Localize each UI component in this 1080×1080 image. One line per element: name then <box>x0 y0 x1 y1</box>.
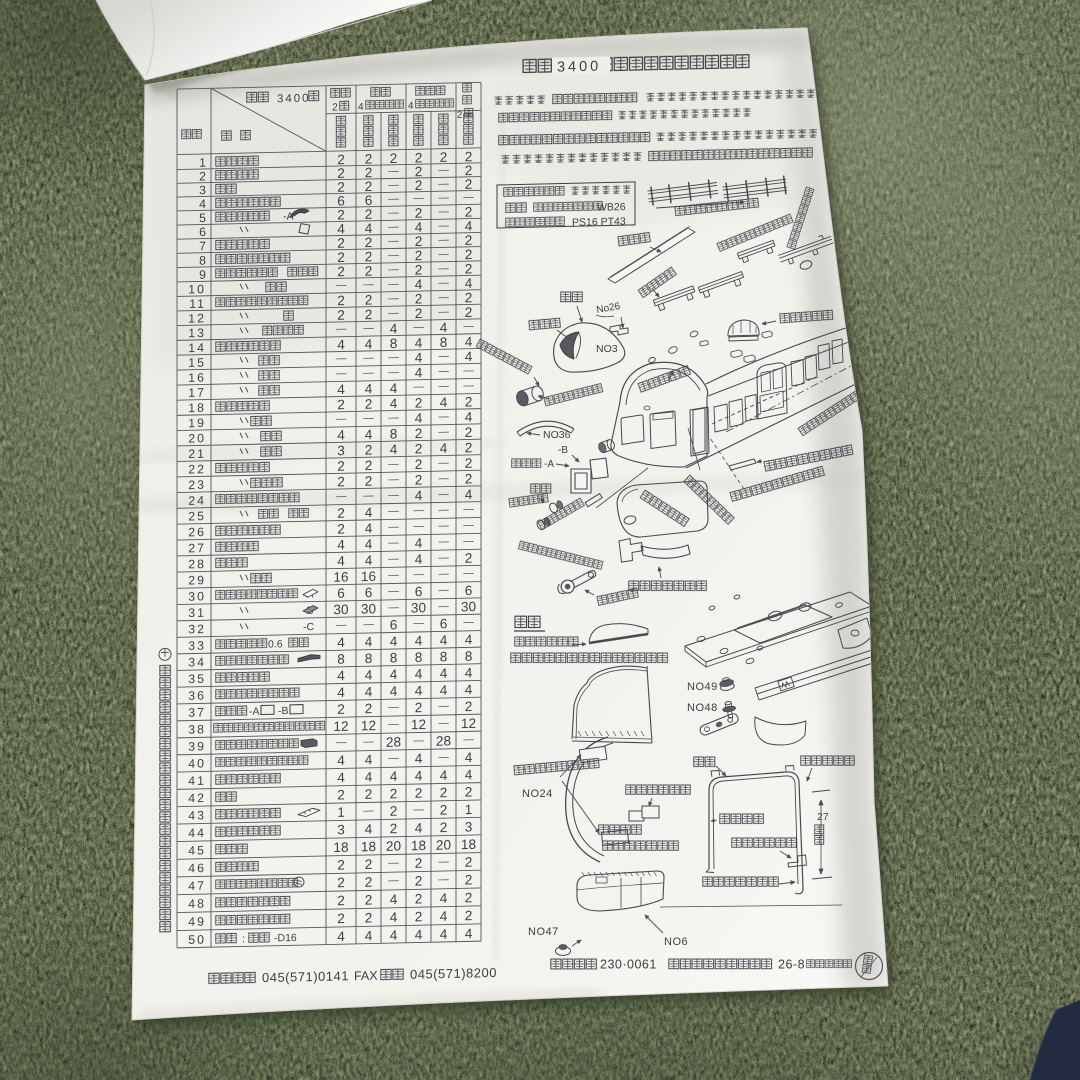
svg-text:18: 18 <box>333 840 348 855</box>
svg-text:4: 4 <box>415 552 423 567</box>
svg-text:33: 33 <box>188 639 206 653</box>
svg-text:2: 2 <box>415 426 423 441</box>
svg-text:30: 30 <box>188 589 206 603</box>
svg-text:—: — <box>438 552 449 564</box>
svg-text:3: 3 <box>337 443 345 458</box>
svg-text:30: 30 <box>461 599 477 614</box>
svg-text:—: — <box>413 568 424 580</box>
svg-text:4: 4 <box>440 891 448 906</box>
svg-text:230·0061: 230·0061 <box>600 958 657 972</box>
svg-text:4: 4 <box>440 666 448 681</box>
svg-text:—: — <box>438 751 449 763</box>
svg-text:11: 11 <box>189 297 206 311</box>
svg-text:4: 4 <box>365 928 373 943</box>
svg-text:2: 2 <box>337 702 345 717</box>
svg-text:5: 5 <box>199 211 206 225</box>
svg-text:4: 4 <box>390 910 398 925</box>
svg-text:20: 20 <box>188 431 206 445</box>
svg-text:2: 2 <box>465 290 473 305</box>
svg-text:—: — <box>438 234 449 246</box>
svg-text:3: 3 <box>337 822 345 837</box>
svg-text:2: 2 <box>440 820 448 835</box>
svg-text:41: 41 <box>188 774 206 788</box>
svg-text:PS16 PT43: PS16 PT43 <box>572 216 626 229</box>
svg-text:4: 4 <box>415 751 423 766</box>
svg-text:—: — <box>363 352 374 364</box>
svg-text:4: 4 <box>465 219 473 234</box>
svg-text:—: — <box>438 411 449 423</box>
svg-text:—: — <box>388 292 399 304</box>
svg-text:2: 2 <box>465 233 473 248</box>
svg-text:—: — <box>363 805 374 817</box>
svg-text:6: 6 <box>337 586 345 601</box>
svg-text:16: 16 <box>361 569 376 584</box>
svg-text:—: — <box>438 248 449 260</box>
svg-text:—: — <box>413 734 424 746</box>
svg-text:—: — <box>388 537 399 549</box>
svg-text:—: — <box>438 520 449 532</box>
svg-text:6: 6 <box>390 617 398 632</box>
svg-text:2: 2 <box>365 701 373 716</box>
svg-text:—: — <box>388 601 399 613</box>
svg-text:—: — <box>336 367 347 379</box>
svg-text:4: 4 <box>415 335 423 350</box>
svg-text:6: 6 <box>337 193 345 208</box>
svg-text:2: 2 <box>390 804 398 819</box>
svg-text:2: 2 <box>390 786 398 801</box>
svg-text:-A: -A <box>249 706 259 718</box>
svg-text::: : <box>242 933 245 945</box>
svg-text:4: 4 <box>465 349 473 364</box>
svg-text:2: 2 <box>440 150 448 165</box>
svg-text:4: 4 <box>390 321 398 336</box>
svg-text:—: — <box>438 584 449 596</box>
svg-text:16: 16 <box>188 371 206 385</box>
svg-text:—: — <box>363 736 374 748</box>
svg-text:4: 4 <box>440 927 448 942</box>
svg-text:—: — <box>438 488 449 500</box>
svg-text:4: 4 <box>337 929 345 944</box>
svg-text:20: 20 <box>436 837 452 852</box>
svg-text:12: 12 <box>361 718 376 733</box>
svg-text:3400: 3400 <box>557 59 601 76</box>
svg-text:8: 8 <box>465 649 473 664</box>
svg-text:24: 24 <box>188 493 206 507</box>
svg-text:—: — <box>438 873 449 885</box>
svg-text:4: 4 <box>390 667 398 682</box>
svg-text:14: 14 <box>188 341 206 355</box>
svg-text:—: — <box>438 472 449 484</box>
svg-text:2: 2 <box>465 305 473 320</box>
svg-text:20: 20 <box>386 838 402 853</box>
svg-text:4: 4 <box>415 536 423 551</box>
svg-text:4: 4 <box>465 334 473 349</box>
svg-text:—: — <box>336 323 347 335</box>
svg-text:2: 2 <box>415 395 423 410</box>
svg-text:27: 27 <box>817 811 829 823</box>
svg-text:4: 4 <box>465 665 473 680</box>
svg-text:4: 4 <box>365 381 373 396</box>
svg-text:4: 4 <box>365 537 373 552</box>
svg-text:—: — <box>388 235 399 247</box>
svg-text:4: 4 <box>337 382 345 397</box>
svg-text:30: 30 <box>411 600 427 615</box>
svg-text:—: — <box>336 619 347 631</box>
svg-text:—: — <box>438 350 449 362</box>
svg-text:—: — <box>438 717 449 729</box>
svg-text:2: 2 <box>465 440 473 455</box>
svg-text:25: 25 <box>188 509 206 523</box>
svg-text:—: — <box>363 618 374 630</box>
svg-text:2: 2 <box>465 890 473 905</box>
svg-text:—: — <box>463 616 474 628</box>
svg-text:4: 4 <box>440 320 448 335</box>
svg-text:4: 4 <box>440 633 448 648</box>
svg-text:19: 19 <box>188 416 206 430</box>
svg-text:2: 2 <box>465 855 473 870</box>
svg-text:4: 4 <box>337 770 345 785</box>
svg-text:—: — <box>388 521 399 533</box>
svg-text:28: 28 <box>188 557 206 571</box>
svg-text:2: 2 <box>415 457 423 472</box>
svg-text:0.6: 0.6 <box>268 638 283 650</box>
svg-text:—: — <box>438 457 449 469</box>
svg-text:2: 2 <box>337 506 345 521</box>
svg-text:2: 2 <box>390 821 398 836</box>
svg-text:49: 49 <box>188 915 206 929</box>
svg-text:48: 48 <box>188 897 206 911</box>
svg-text:10: 10 <box>188 282 206 296</box>
svg-text:—: — <box>388 412 399 424</box>
svg-text:4: 4 <box>465 276 473 291</box>
svg-text:—: — <box>438 164 449 176</box>
svg-text:2: 2 <box>337 911 345 926</box>
svg-text:—: — <box>463 567 474 579</box>
svg-text:-A: -A <box>544 459 554 470</box>
svg-text:4: 4 <box>415 277 423 292</box>
svg-text:2: 2 <box>465 394 473 409</box>
svg-text:2: 2 <box>365 249 373 264</box>
svg-text:NO24: NO24 <box>522 788 553 800</box>
svg-text:—: — <box>388 351 399 363</box>
svg-text:-B: -B <box>278 705 288 717</box>
svg-text:2: 2 <box>365 292 373 307</box>
svg-text:4: 4 <box>415 411 423 426</box>
svg-text:2: 2 <box>365 910 373 925</box>
svg-text:2: 2 <box>415 441 423 456</box>
svg-text:4: 4 <box>337 537 345 552</box>
svg-text:4: 4 <box>465 750 473 765</box>
svg-text:4: 4 <box>337 221 345 236</box>
svg-text:—: — <box>438 220 449 232</box>
svg-text:2: 2 <box>337 521 345 536</box>
svg-text:2: 2 <box>365 892 373 907</box>
svg-text:44: 44 <box>188 826 206 840</box>
svg-text:43: 43 <box>188 808 206 822</box>
svg-text:2: 2 <box>465 425 473 440</box>
svg-text:4: 4 <box>390 381 398 396</box>
svg-text:4: 4 <box>465 487 473 502</box>
svg-text:—: — <box>336 352 347 364</box>
svg-text:NO47: NO47 <box>528 926 559 938</box>
svg-text:21: 21 <box>188 447 206 461</box>
svg-text:2: 2 <box>365 875 373 890</box>
svg-text:NO48: NO48 <box>687 702 718 714</box>
svg-text:38: 38 <box>188 722 206 736</box>
svg-text:17: 17 <box>188 386 206 400</box>
svg-text:2: 2 <box>415 248 423 263</box>
svg-text:37: 37 <box>188 705 206 719</box>
svg-text:4: 4 <box>440 395 448 410</box>
svg-text:4: 4 <box>415 220 423 235</box>
svg-text:4: 4 <box>440 768 448 783</box>
svg-text:—: — <box>438 178 449 190</box>
svg-text:4: 4 <box>337 428 345 443</box>
svg-text:2: 2 <box>337 180 345 195</box>
svg-text:6: 6 <box>465 583 473 598</box>
svg-text:—: — <box>388 569 399 581</box>
svg-text:4: 4 <box>415 488 423 503</box>
svg-text:4: 4 <box>365 752 373 767</box>
svg-text:1: 1 <box>465 802 473 817</box>
svg-text:2: 2 <box>440 802 448 817</box>
svg-text:FAX: FAX <box>354 969 378 984</box>
svg-text:2: 2 <box>465 551 473 566</box>
svg-text:31: 31 <box>188 606 206 620</box>
svg-text:2: 2 <box>365 207 373 222</box>
svg-text:2: 2 <box>337 293 345 308</box>
svg-text:2: 2 <box>337 397 345 412</box>
svg-text:—: — <box>438 600 449 612</box>
svg-text:—: — <box>438 504 449 516</box>
svg-text:—: — <box>388 718 399 730</box>
svg-text:—: — <box>388 263 399 275</box>
svg-text:—: — <box>413 321 424 333</box>
svg-text:4: 4 <box>465 682 473 697</box>
svg-text:2: 2 <box>415 891 423 906</box>
svg-text:2: 2 <box>465 456 473 471</box>
svg-text:—: — <box>388 249 399 261</box>
svg-text:8: 8 <box>390 650 398 665</box>
svg-text:18: 18 <box>361 839 376 854</box>
svg-text:2: 2 <box>465 177 473 192</box>
svg-text:4: 4 <box>358 102 364 113</box>
svg-text:NO49: NO49 <box>687 681 718 693</box>
svg-text:4: 4 <box>415 633 423 648</box>
svg-text:—: — <box>438 192 449 204</box>
svg-text:4: 4 <box>415 666 423 681</box>
svg-text:2: 2 <box>337 787 345 802</box>
svg-text:NO6: NO6 <box>664 936 688 948</box>
svg-text:6: 6 <box>199 225 206 239</box>
svg-text:2: 2 <box>365 179 373 194</box>
svg-text:—: — <box>388 701 399 713</box>
svg-text:—: — <box>438 536 449 548</box>
svg-text:-B: -B <box>558 445 568 456</box>
svg-text:—: — <box>363 367 374 379</box>
svg-text:6: 6 <box>415 584 423 599</box>
svg-text:2: 2 <box>390 151 398 166</box>
svg-text:—: — <box>388 857 399 869</box>
svg-text:—: — <box>438 700 449 712</box>
svg-text:2: 2 <box>337 308 345 323</box>
svg-text:8: 8 <box>199 253 206 267</box>
svg-text:—: — <box>463 365 474 377</box>
svg-text:—: — <box>388 458 399 470</box>
svg-text:4: 4 <box>337 553 345 568</box>
svg-text:4: 4 <box>365 684 373 699</box>
svg-text:4: 4 <box>440 909 448 924</box>
svg-text:—: — <box>413 520 424 532</box>
svg-text:—: — <box>336 490 347 502</box>
svg-text:4: 4 <box>390 634 398 649</box>
svg-text:34: 34 <box>188 655 206 669</box>
svg-text:4: 4 <box>365 769 373 784</box>
svg-text:50: 50 <box>188 933 206 947</box>
svg-text:4: 4 <box>465 926 473 941</box>
svg-text:4: 4 <box>365 505 373 520</box>
svg-text:2: 2 <box>465 785 473 800</box>
svg-text:3: 3 <box>465 819 473 834</box>
svg-text:2: 2 <box>465 471 473 486</box>
svg-text:2: 2 <box>365 474 373 489</box>
svg-text:—: — <box>388 278 399 290</box>
svg-text:2: 2 <box>415 786 423 801</box>
svg-text:4: 4 <box>390 892 398 907</box>
svg-text:4: 4 <box>465 767 473 782</box>
svg-text:15: 15 <box>188 356 206 370</box>
svg-text:2: 2 <box>415 178 423 193</box>
svg-text:18: 18 <box>461 837 476 852</box>
svg-text:6: 6 <box>365 585 373 600</box>
svg-text:-D16: -D16 <box>274 932 297 945</box>
svg-text:—: — <box>463 535 474 547</box>
svg-text:-C: -C <box>303 621 314 633</box>
svg-text:—: — <box>363 322 374 334</box>
svg-text:4: 4 <box>415 350 423 365</box>
svg-text:8: 8 <box>337 652 345 667</box>
svg-text:—: — <box>438 291 449 303</box>
svg-text:2: 2 <box>337 875 345 890</box>
svg-text:4: 4 <box>390 684 398 699</box>
svg-text:—: — <box>438 856 449 868</box>
svg-text:2: 2 <box>199 169 206 183</box>
svg-text:4: 4 <box>415 821 423 836</box>
svg-text:—: — <box>336 279 347 291</box>
svg-text:—: — <box>413 192 424 204</box>
svg-text:8: 8 <box>440 335 448 350</box>
svg-text:—: — <box>363 490 374 502</box>
svg-text:4: 4 <box>199 197 206 211</box>
svg-text:2: 2 <box>465 261 473 276</box>
svg-text:4: 4 <box>415 927 423 942</box>
svg-text:—: — <box>388 165 399 177</box>
svg-text:—: — <box>438 380 449 392</box>
svg-text:—: — <box>463 733 474 745</box>
svg-text:—: — <box>388 585 399 597</box>
svg-text:4: 4 <box>408 101 414 112</box>
svg-text:—: — <box>438 365 449 377</box>
svg-text:4: 4 <box>365 668 373 683</box>
svg-text:2: 2 <box>415 700 423 715</box>
svg-text:4: 4 <box>365 553 373 568</box>
svg-text:—: — <box>413 504 424 516</box>
svg-text:2: 2 <box>365 397 373 412</box>
svg-text:4: 4 <box>440 441 448 456</box>
svg-text:4: 4 <box>337 753 345 768</box>
svg-text:2: 2 <box>337 893 345 908</box>
svg-text:—: — <box>388 874 399 886</box>
svg-text:—: — <box>438 426 449 438</box>
svg-text:2: 2 <box>465 247 473 262</box>
svg-text:—: — <box>363 412 374 424</box>
svg-text:4: 4 <box>365 427 373 442</box>
svg-text:4: 4 <box>365 221 373 236</box>
svg-text:4: 4 <box>390 928 398 943</box>
svg-text:NO3: NO3 <box>596 343 618 355</box>
svg-text:—: — <box>438 206 449 218</box>
svg-text:8: 8 <box>390 426 398 441</box>
svg-text:—: — <box>336 736 347 748</box>
svg-text:4: 4 <box>365 634 373 649</box>
svg-text:—: — <box>388 505 399 517</box>
svg-text:22: 22 <box>188 462 206 476</box>
svg-text:045(571)8200: 045(571)8200 <box>410 965 497 982</box>
svg-text:2: 2 <box>440 785 448 800</box>
svg-text:2: 2 <box>365 235 373 250</box>
svg-text:2: 2 <box>365 307 373 322</box>
svg-text:2: 2 <box>415 234 423 249</box>
svg-text:2: 2 <box>365 787 373 802</box>
svg-text:47: 47 <box>188 879 206 893</box>
svg-text:2: 2 <box>465 872 473 887</box>
svg-text:2: 2 <box>365 857 373 872</box>
svg-text:40: 40 <box>188 756 206 770</box>
svg-text:3400: 3400 <box>277 93 311 106</box>
svg-text:2: 2 <box>465 205 473 220</box>
svg-text:29: 29 <box>188 573 206 587</box>
svg-text:42: 42 <box>188 791 206 805</box>
svg-text:—: — <box>336 413 347 425</box>
svg-text:2: 2 <box>365 442 373 457</box>
svg-text:—: — <box>438 277 449 289</box>
svg-text:39: 39 <box>188 739 206 753</box>
svg-text:2: 2 <box>415 472 423 487</box>
svg-text:2: 2 <box>337 236 345 251</box>
svg-text:—: — <box>463 519 474 531</box>
svg-text:—: — <box>388 489 399 501</box>
svg-text:4: 4 <box>415 683 423 698</box>
svg-text:26-8: 26-8 <box>778 958 805 972</box>
svg-text:4: 4 <box>415 365 423 380</box>
svg-text:4: 4 <box>465 632 473 647</box>
svg-text:2: 2 <box>415 856 423 871</box>
svg-text:—: — <box>388 179 399 191</box>
svg-text:NO36: NO36 <box>543 429 571 441</box>
svg-text:4: 4 <box>337 685 345 700</box>
svg-text:4: 4 <box>365 822 373 837</box>
svg-text:—: — <box>388 221 399 233</box>
svg-text:2: 2 <box>415 306 423 321</box>
svg-text:2: 2 <box>415 909 423 924</box>
svg-text:2: 2 <box>465 908 473 923</box>
svg-text:2: 2 <box>415 873 423 888</box>
svg-text:18: 18 <box>188 401 206 415</box>
svg-text:8: 8 <box>415 650 423 665</box>
svg-text:23: 23 <box>188 478 206 492</box>
svg-text:46: 46 <box>188 861 206 875</box>
svg-text:4: 4 <box>440 683 448 698</box>
